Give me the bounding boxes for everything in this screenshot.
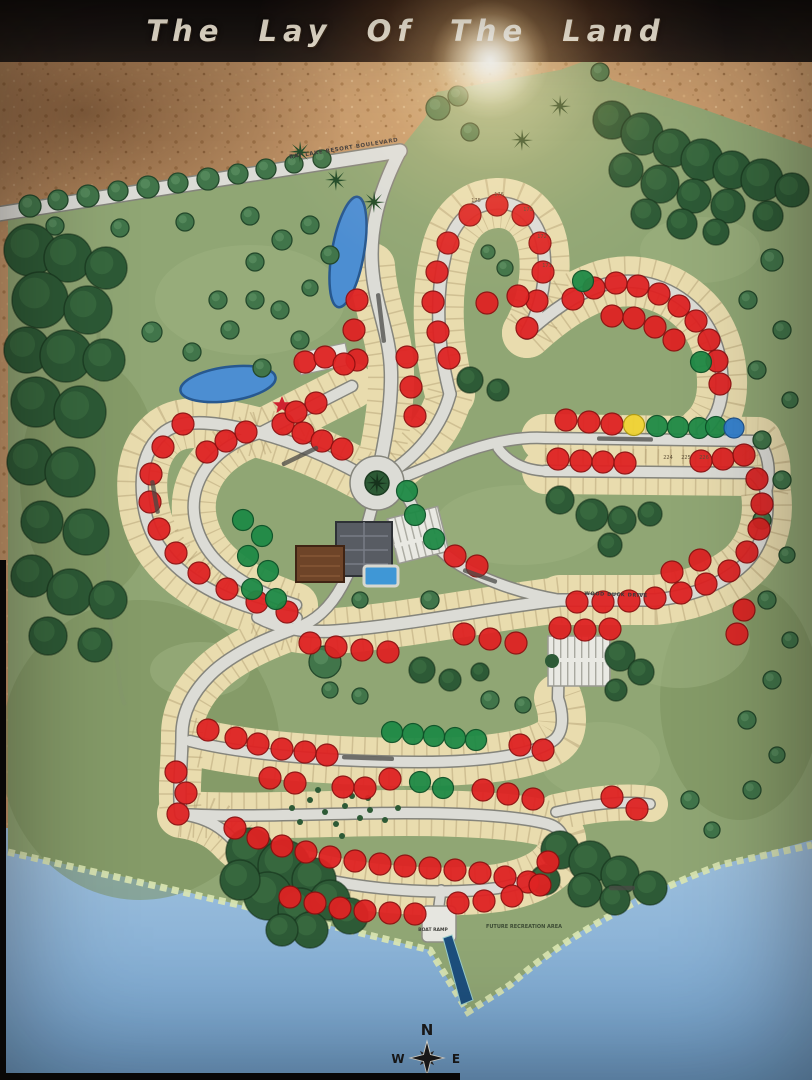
lot-dot-red xyxy=(148,518,170,540)
lot-dot-green xyxy=(238,546,259,567)
lot-dot-red xyxy=(626,798,648,820)
lot-dot-red xyxy=(472,779,494,801)
tree-highlight xyxy=(80,188,90,198)
lot-dot-red xyxy=(319,846,341,868)
forest-tree-highlight xyxy=(613,156,632,175)
shrub xyxy=(382,817,388,823)
shrub xyxy=(339,833,345,839)
tree-highlight xyxy=(430,99,441,110)
forest-tree-highlight xyxy=(94,585,115,606)
tree-highlight xyxy=(746,783,754,791)
lot-dot-red xyxy=(216,578,238,600)
lot-dot-red xyxy=(152,436,174,458)
lot-dot-red xyxy=(726,623,748,645)
lot-dot-red xyxy=(175,782,197,804)
tree-highlight xyxy=(324,684,331,691)
tree-highlight xyxy=(761,593,769,601)
lot-dot-green xyxy=(258,561,279,582)
lot-dot-red xyxy=(670,582,692,604)
lot-dot-red xyxy=(404,903,426,925)
forest-tree-highlight xyxy=(26,505,49,528)
lot-dot-red xyxy=(215,430,237,452)
lot-dot-green xyxy=(242,579,263,600)
tree-highlight xyxy=(231,167,240,176)
lot-dot-red xyxy=(733,599,755,621)
lot-dot-red xyxy=(437,232,459,254)
lot-dot-green xyxy=(445,728,466,749)
tree-highlight xyxy=(171,176,180,185)
tree-highlight xyxy=(776,473,784,481)
tree-highlight xyxy=(304,282,311,289)
shrub xyxy=(322,809,328,815)
lot-dot-red xyxy=(648,283,670,305)
lot-dot-red xyxy=(601,413,623,435)
lot-dot-green xyxy=(433,778,454,799)
lot-dot-red xyxy=(325,636,347,658)
lot-dot-red xyxy=(712,448,734,470)
lot-dot-red xyxy=(709,373,731,395)
lot-dot-green xyxy=(668,417,689,438)
tree-highlight xyxy=(784,634,791,641)
tree-highlight xyxy=(741,713,749,721)
tree-highlight xyxy=(756,433,764,441)
forest-tree-highlight xyxy=(612,509,627,524)
tree-highlight xyxy=(256,361,264,369)
forest-tree-highlight xyxy=(69,514,94,539)
forest-tree-highlight xyxy=(19,278,50,309)
lot-dot-red xyxy=(422,291,444,313)
forest-tree-highlight xyxy=(51,452,79,480)
lot-dot-red xyxy=(196,441,218,463)
lot-dot-green xyxy=(382,722,403,743)
lot-dot-red xyxy=(549,617,571,639)
lot-number: 172 xyxy=(537,234,547,240)
lot-dot-red xyxy=(271,738,293,760)
palm-tree-icon xyxy=(511,129,533,151)
forest-tree-highlight xyxy=(53,574,78,599)
tree-highlight xyxy=(49,219,57,227)
tree-highlight xyxy=(742,293,750,301)
forest-tree-highlight xyxy=(671,212,688,229)
lot-number: 173 xyxy=(523,207,533,213)
forest-tree-highlight xyxy=(635,202,652,219)
lot-dot-red xyxy=(601,786,623,808)
lot-dot-red xyxy=(225,727,247,749)
lot-dot-red xyxy=(329,897,351,919)
lot-dot-red xyxy=(599,618,621,640)
forest-tree-highlight xyxy=(50,239,76,265)
tree-highlight xyxy=(244,209,252,217)
compass-w: W xyxy=(391,1052,404,1066)
palm-tree-icon xyxy=(549,95,571,117)
compass-n: N xyxy=(421,1021,434,1039)
tree-highlight xyxy=(781,549,788,556)
forest-tree-highlight xyxy=(631,662,645,676)
forest-tree-highlight xyxy=(598,105,619,126)
forest-tree-highlight xyxy=(88,343,111,366)
lot-dot-red xyxy=(331,438,353,460)
photo-edge-left xyxy=(0,560,6,1080)
forest-tree-highlight xyxy=(606,860,627,881)
forest-tree-highlight xyxy=(681,182,700,201)
poi-label: FUTURE RECREATION AREA xyxy=(486,924,562,930)
lot-dot-red xyxy=(661,561,683,583)
lot-dot-green xyxy=(403,724,424,745)
lot-dot-yellow xyxy=(624,415,645,436)
palm-tree-icon xyxy=(363,191,385,213)
lot-dot-red xyxy=(695,573,717,595)
lot-dot-red xyxy=(344,850,366,872)
shrub xyxy=(315,787,321,793)
lot-dot-red xyxy=(438,347,460,369)
lot-dot-red xyxy=(377,641,399,663)
lot-dot-red xyxy=(294,741,316,763)
lot-dot-red xyxy=(529,874,551,896)
forest-tree-highlight xyxy=(10,332,35,357)
forest-tree-highlight xyxy=(608,681,620,693)
lot-dot-green xyxy=(424,726,445,747)
lot-dot-red xyxy=(165,761,187,783)
parking-island-tree xyxy=(545,654,559,668)
lot-dot-red xyxy=(284,772,306,794)
forest-tree-highlight xyxy=(604,888,621,905)
forest-tree-highlight xyxy=(16,559,39,582)
tree-highlight xyxy=(424,593,432,601)
lot-dot-red xyxy=(497,783,519,805)
forest-tree-highlight xyxy=(658,133,679,154)
tree-highlight xyxy=(464,125,472,133)
lot-dot-red xyxy=(188,562,210,584)
forest-tree-highlight xyxy=(13,444,38,469)
shrub xyxy=(395,805,401,811)
lot-dot-red xyxy=(574,619,596,641)
forest-tree-highlight xyxy=(626,117,649,140)
shrub xyxy=(342,803,348,809)
shrub xyxy=(357,815,363,821)
tree-highlight xyxy=(22,198,32,208)
lot-dot-red xyxy=(304,892,326,914)
lot-dot-red xyxy=(396,346,418,368)
lot-dot-red xyxy=(295,841,317,863)
forest-tree-highlight xyxy=(90,251,113,274)
swimming-pool xyxy=(364,566,398,586)
lot-dot-red xyxy=(718,560,740,582)
forest-tree-highlight xyxy=(70,291,96,317)
lot-dot-green xyxy=(424,529,445,550)
lot-dot-green xyxy=(233,510,254,531)
tree-highlight xyxy=(706,824,713,831)
lot-dot-red xyxy=(379,902,401,924)
lot-dot-red xyxy=(351,639,373,661)
lot-dot-red xyxy=(419,857,441,879)
lot-dot-red xyxy=(685,310,707,332)
lot-number: 226 xyxy=(699,455,709,461)
lot-dot-red xyxy=(751,493,773,515)
lot-dot-red xyxy=(167,803,189,825)
site-map: BAY LAKE RESORT BOULEVARDWOOD DUCK DRIVE… xyxy=(0,0,812,1080)
lot-dot-red xyxy=(453,623,475,645)
lot-dot-blue xyxy=(724,418,744,438)
map-title: The Lay Of The Land xyxy=(146,14,665,48)
lot-dot-red xyxy=(509,734,531,756)
tree-highlight xyxy=(354,690,361,697)
tree-highlight xyxy=(275,233,284,242)
plaza-palm-icon xyxy=(366,472,388,494)
lot-dot-green xyxy=(706,417,727,438)
forest-tree-highlight xyxy=(779,176,798,195)
shrub xyxy=(367,807,373,813)
forest-tree-highlight xyxy=(641,504,654,517)
tree-highlight xyxy=(354,594,361,601)
lot-number: 224 xyxy=(663,455,673,461)
lot-dot-red xyxy=(505,632,527,654)
lot-dot-red xyxy=(627,275,649,297)
lot-dot-red xyxy=(279,886,301,908)
forest-tree-highlight xyxy=(746,163,769,186)
forest-tree-highlight xyxy=(460,370,474,384)
forest-tree-highlight xyxy=(686,143,709,166)
lot-dot-red xyxy=(394,855,416,877)
tree-highlight xyxy=(186,345,194,353)
tree-highlight xyxy=(751,363,759,371)
lot-dot-green xyxy=(252,526,273,547)
lot-dot-red xyxy=(271,835,293,857)
tree-highlight xyxy=(111,184,120,193)
forest-tree-highlight xyxy=(757,204,774,221)
lot-dot-red xyxy=(501,885,523,907)
lot-dot-red xyxy=(644,316,666,338)
lot-dot-red xyxy=(601,305,623,327)
forest-tree-highlight xyxy=(412,660,426,674)
tree-highlight xyxy=(766,673,774,681)
tree-highlight xyxy=(776,323,784,331)
forest-tree-highlight xyxy=(473,665,483,675)
forest-tree-highlight xyxy=(34,621,55,642)
lot-dot-red xyxy=(172,413,194,435)
lot-dot-red xyxy=(473,890,495,912)
lot-dot-red xyxy=(526,290,548,312)
lot-dot-red xyxy=(305,392,327,414)
lot-dot-red xyxy=(459,204,481,226)
lot-dot-red xyxy=(444,545,466,567)
forest-tree-highlight xyxy=(609,644,626,661)
tree-highlight xyxy=(224,323,232,331)
forest-tree-highlight xyxy=(61,391,90,420)
lot-dot-red xyxy=(555,409,577,431)
lot-dot-red xyxy=(663,329,685,351)
lot-dot-red xyxy=(592,451,614,473)
tree-highlight xyxy=(684,793,692,801)
tree-highlight xyxy=(114,221,122,229)
lot-dot-red xyxy=(746,468,768,490)
lot-dot-red xyxy=(689,549,711,571)
lot-dot-red xyxy=(698,329,720,351)
lot-dot-red xyxy=(224,817,246,839)
lot-dot-red xyxy=(733,444,755,466)
illegible-road-label xyxy=(609,886,635,890)
lot-number: 225 xyxy=(681,455,691,461)
lot-dot-red xyxy=(537,851,559,873)
lot-dot-red xyxy=(247,827,269,849)
lot-dot-red xyxy=(614,452,636,474)
shrub xyxy=(297,819,303,825)
lot-dot-red xyxy=(570,450,592,472)
tree-highlight xyxy=(784,394,791,401)
lot-dot-red xyxy=(578,411,600,433)
shrub xyxy=(289,805,295,811)
tree-highlight xyxy=(200,171,210,181)
tree-highlight xyxy=(212,293,220,301)
lot-dot-red xyxy=(332,776,354,798)
lot-dot-red xyxy=(294,351,316,373)
forest-tree-highlight xyxy=(297,916,317,936)
lot-dot-red xyxy=(748,518,770,540)
lot-dot-red xyxy=(668,295,690,317)
forest-tree-highlight xyxy=(298,862,322,886)
tree-highlight xyxy=(249,255,257,263)
lot-dot-red xyxy=(476,292,498,314)
lot-number: 171 xyxy=(542,263,552,269)
lot-dot-red xyxy=(469,862,491,884)
tree-highlight xyxy=(499,262,506,269)
tree-highlight xyxy=(145,325,154,334)
lot-dot-green xyxy=(397,481,418,502)
forest-tree-highlight xyxy=(47,335,76,364)
lot-dot-green xyxy=(691,352,712,373)
lot-dot-red xyxy=(197,719,219,741)
palm-tree-icon xyxy=(325,169,347,191)
lot-dot-red xyxy=(426,261,448,283)
tree-highlight xyxy=(594,65,602,73)
tree-highlight xyxy=(249,293,257,301)
photo-edge-bottom xyxy=(0,1073,460,1080)
lot-dot-red xyxy=(165,542,187,564)
forest-tree-highlight xyxy=(574,845,597,868)
lot-dot-red xyxy=(316,744,338,766)
forest-tree-highlight xyxy=(580,502,598,520)
forest-tree-highlight xyxy=(17,382,45,410)
lot-dot-red xyxy=(623,307,645,329)
lot-dot-green xyxy=(466,730,487,751)
tree-highlight xyxy=(274,303,282,311)
shrub xyxy=(333,821,339,827)
tree-highlight xyxy=(179,215,187,223)
lot-dot-red xyxy=(369,853,391,875)
lot-dot-red xyxy=(547,448,569,470)
lot-dot-green xyxy=(573,271,594,292)
lot-dot-red xyxy=(343,319,365,341)
lot-dot-green xyxy=(266,589,287,610)
lot-dot-red xyxy=(354,900,376,922)
lot-dot-red xyxy=(235,421,257,443)
shrub xyxy=(307,797,313,803)
forest-tree-highlight xyxy=(601,535,614,548)
lot-dot-red xyxy=(346,289,368,311)
lot-dot-red xyxy=(427,321,449,343)
tree-highlight xyxy=(294,333,302,341)
lot-dot-red xyxy=(447,892,469,914)
forest-tree-highlight xyxy=(490,381,502,393)
forest-tree-highlight xyxy=(718,155,739,176)
compass-e: E xyxy=(452,1052,460,1066)
forest-tree-highlight xyxy=(225,864,247,886)
lot-dot-green xyxy=(410,772,431,793)
forest-tree-highlight xyxy=(715,192,734,211)
lot-dot-red xyxy=(400,376,422,398)
lot-dot-green xyxy=(405,505,426,526)
lot-dot-red xyxy=(247,733,269,755)
lot-dot-red xyxy=(522,788,544,810)
tree-highlight xyxy=(140,179,150,189)
tree-highlight xyxy=(259,162,268,171)
tree-highlight xyxy=(484,693,492,701)
forest-tree-highlight xyxy=(10,229,39,258)
lot-dot-red xyxy=(532,739,554,761)
lot-dot-red xyxy=(690,450,712,472)
lot-dot-red xyxy=(333,353,355,375)
lot-dot-red xyxy=(479,628,501,650)
title-bar: The Lay Of The Land xyxy=(0,0,812,62)
poi-label: BOAT RAMP xyxy=(418,927,448,933)
forest-tree-highlight xyxy=(572,876,591,895)
forest-tree-highlight xyxy=(442,671,454,683)
lot-dot-red xyxy=(507,285,529,307)
tree-highlight xyxy=(483,247,489,253)
lot-dot-red xyxy=(259,767,281,789)
lot-dot-red xyxy=(404,405,426,427)
lot-dot-green xyxy=(647,416,668,437)
resort-map-photo: BAY LAKE RESORT BOULEVARDWOOD DUCK DRIVE… xyxy=(0,0,812,1080)
tree-highlight xyxy=(51,193,60,202)
forest-tree-highlight xyxy=(706,222,720,236)
lot-dot-red xyxy=(516,317,538,339)
forest-tree-highlight xyxy=(646,169,667,190)
tree-highlight xyxy=(304,218,312,226)
tree-highlight xyxy=(517,699,524,706)
forest-tree-highlight xyxy=(550,489,565,504)
tree-highlight xyxy=(771,749,778,756)
lot-dot-red xyxy=(736,541,758,563)
lot-number: 176 xyxy=(494,192,504,198)
tree-highlight xyxy=(324,248,332,256)
lot-dot-red xyxy=(379,768,401,790)
forest-tree-highlight xyxy=(82,631,101,650)
forest-tree-highlight xyxy=(270,917,288,935)
lot-dot-red xyxy=(354,777,376,799)
forest-tree-highlight xyxy=(637,874,656,893)
tree-highlight xyxy=(451,89,460,98)
lot-number: 175 xyxy=(471,198,481,204)
lot-dot-red xyxy=(299,632,321,654)
lot-dot-red xyxy=(444,859,466,881)
lot-dot-red xyxy=(605,272,627,294)
tree-highlight xyxy=(764,252,774,262)
lot-dot-red xyxy=(285,401,307,423)
